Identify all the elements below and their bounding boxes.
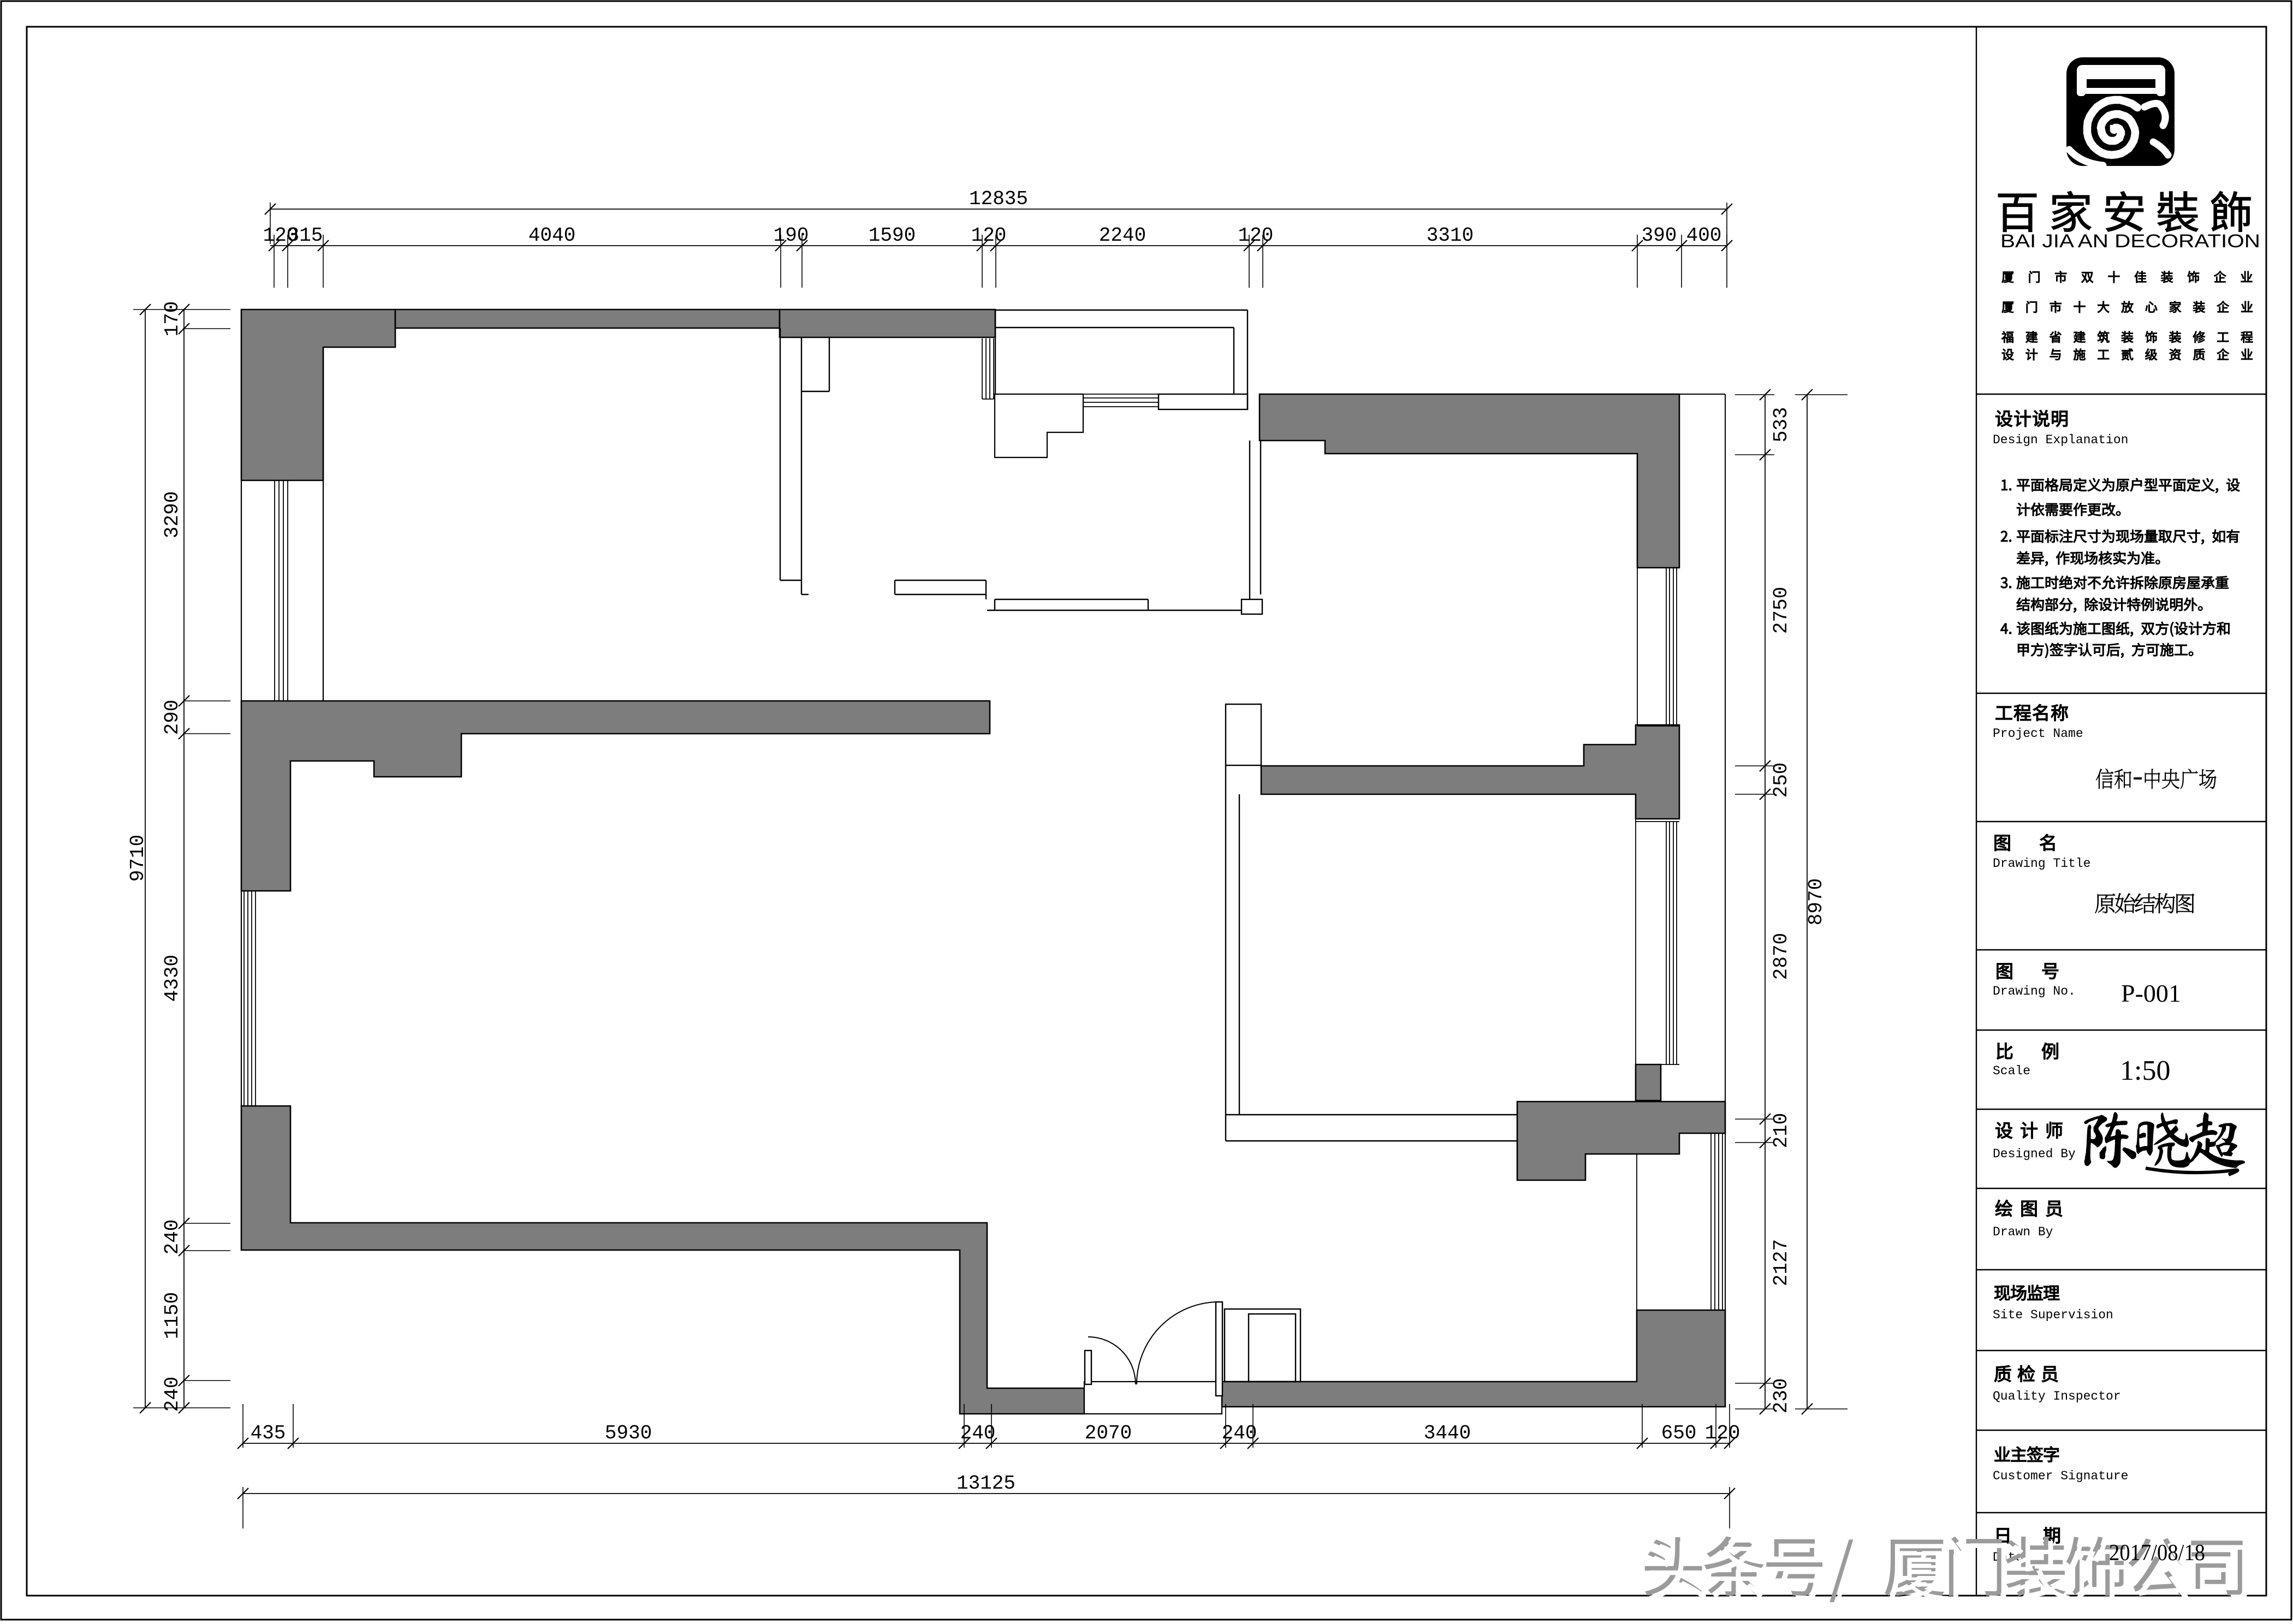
svg-text:Design Explanation: Design Explanation [1993,433,2128,447]
svg-text:12835: 12835 [969,188,1028,210]
svg-text:4040: 4040 [528,224,575,247]
svg-text:1150: 1150 [161,1292,183,1339]
svg-text:13125: 13125 [957,1472,1015,1495]
svg-text:1:50: 1:50 [2120,1055,2170,1086]
svg-text:650: 650 [1661,1422,1697,1444]
svg-text:120: 120 [1238,224,1274,247]
svg-text:290: 290 [161,700,183,735]
svg-text:2017/08/18: 2017/08/18 [2109,1540,2205,1566]
svg-text:2070: 2070 [1085,1422,1132,1444]
svg-text:2127: 2127 [1770,1239,1792,1286]
svg-text:Drawn By: Drawn By [1993,1225,2053,1239]
svg-text:5930: 5930 [605,1422,652,1444]
svg-text:Project Name: Project Name [1993,727,2083,741]
svg-text:1590: 1590 [869,224,916,247]
svg-text:230: 230 [1770,1378,1792,1414]
svg-text:240: 240 [161,1220,183,1255]
svg-text:4330: 4330 [161,955,183,1002]
svg-text:240: 240 [960,1422,996,1444]
svg-text:3310: 3310 [1427,224,1474,247]
svg-text:8970: 8970 [1805,878,1827,925]
svg-text:120: 120 [971,224,1007,247]
svg-text:Site Supervision: Site Supervision [1993,1308,2113,1322]
svg-text:315: 315 [288,224,323,247]
svg-text:190: 190 [774,224,809,247]
svg-text:240: 240 [161,1377,183,1412]
svg-text:BAI JIA AN DECORATION: BAI JIA AN DECORATION [2000,231,2260,252]
svg-text:2240: 2240 [1099,224,1146,247]
svg-text:2870: 2870 [1770,933,1792,980]
svg-text:Designed By: Designed By [1993,1147,2076,1161]
svg-text:Drawing Title: Drawing Title [1993,856,2090,871]
svg-text:2750: 2750 [1770,587,1792,634]
svg-text:Drawing No.: Drawing No. [1993,984,2076,998]
svg-text:Customer Signature: Customer Signature [1993,1469,2128,1483]
svg-text:240: 240 [1222,1422,1257,1444]
svg-text:250: 250 [1770,763,1792,798]
svg-text:533: 533 [1770,407,1792,443]
svg-text:3440: 3440 [1424,1422,1471,1444]
svg-text:Quality Inspector: Quality Inspector [1993,1389,2121,1403]
svg-text:435: 435 [251,1422,286,1444]
svg-text:400: 400 [1686,224,1722,247]
svg-text:Scale: Scale [1993,1064,2030,1078]
svg-text:390: 390 [1642,224,1677,247]
svg-text:210: 210 [1770,1113,1792,1149]
svg-text:120: 120 [1705,1422,1740,1444]
svg-text:3290: 3290 [161,491,183,538]
svg-text:P-001: P-001 [2121,979,2181,1007]
svg-text:170: 170 [161,301,183,337]
svg-text:9710: 9710 [127,835,149,882]
